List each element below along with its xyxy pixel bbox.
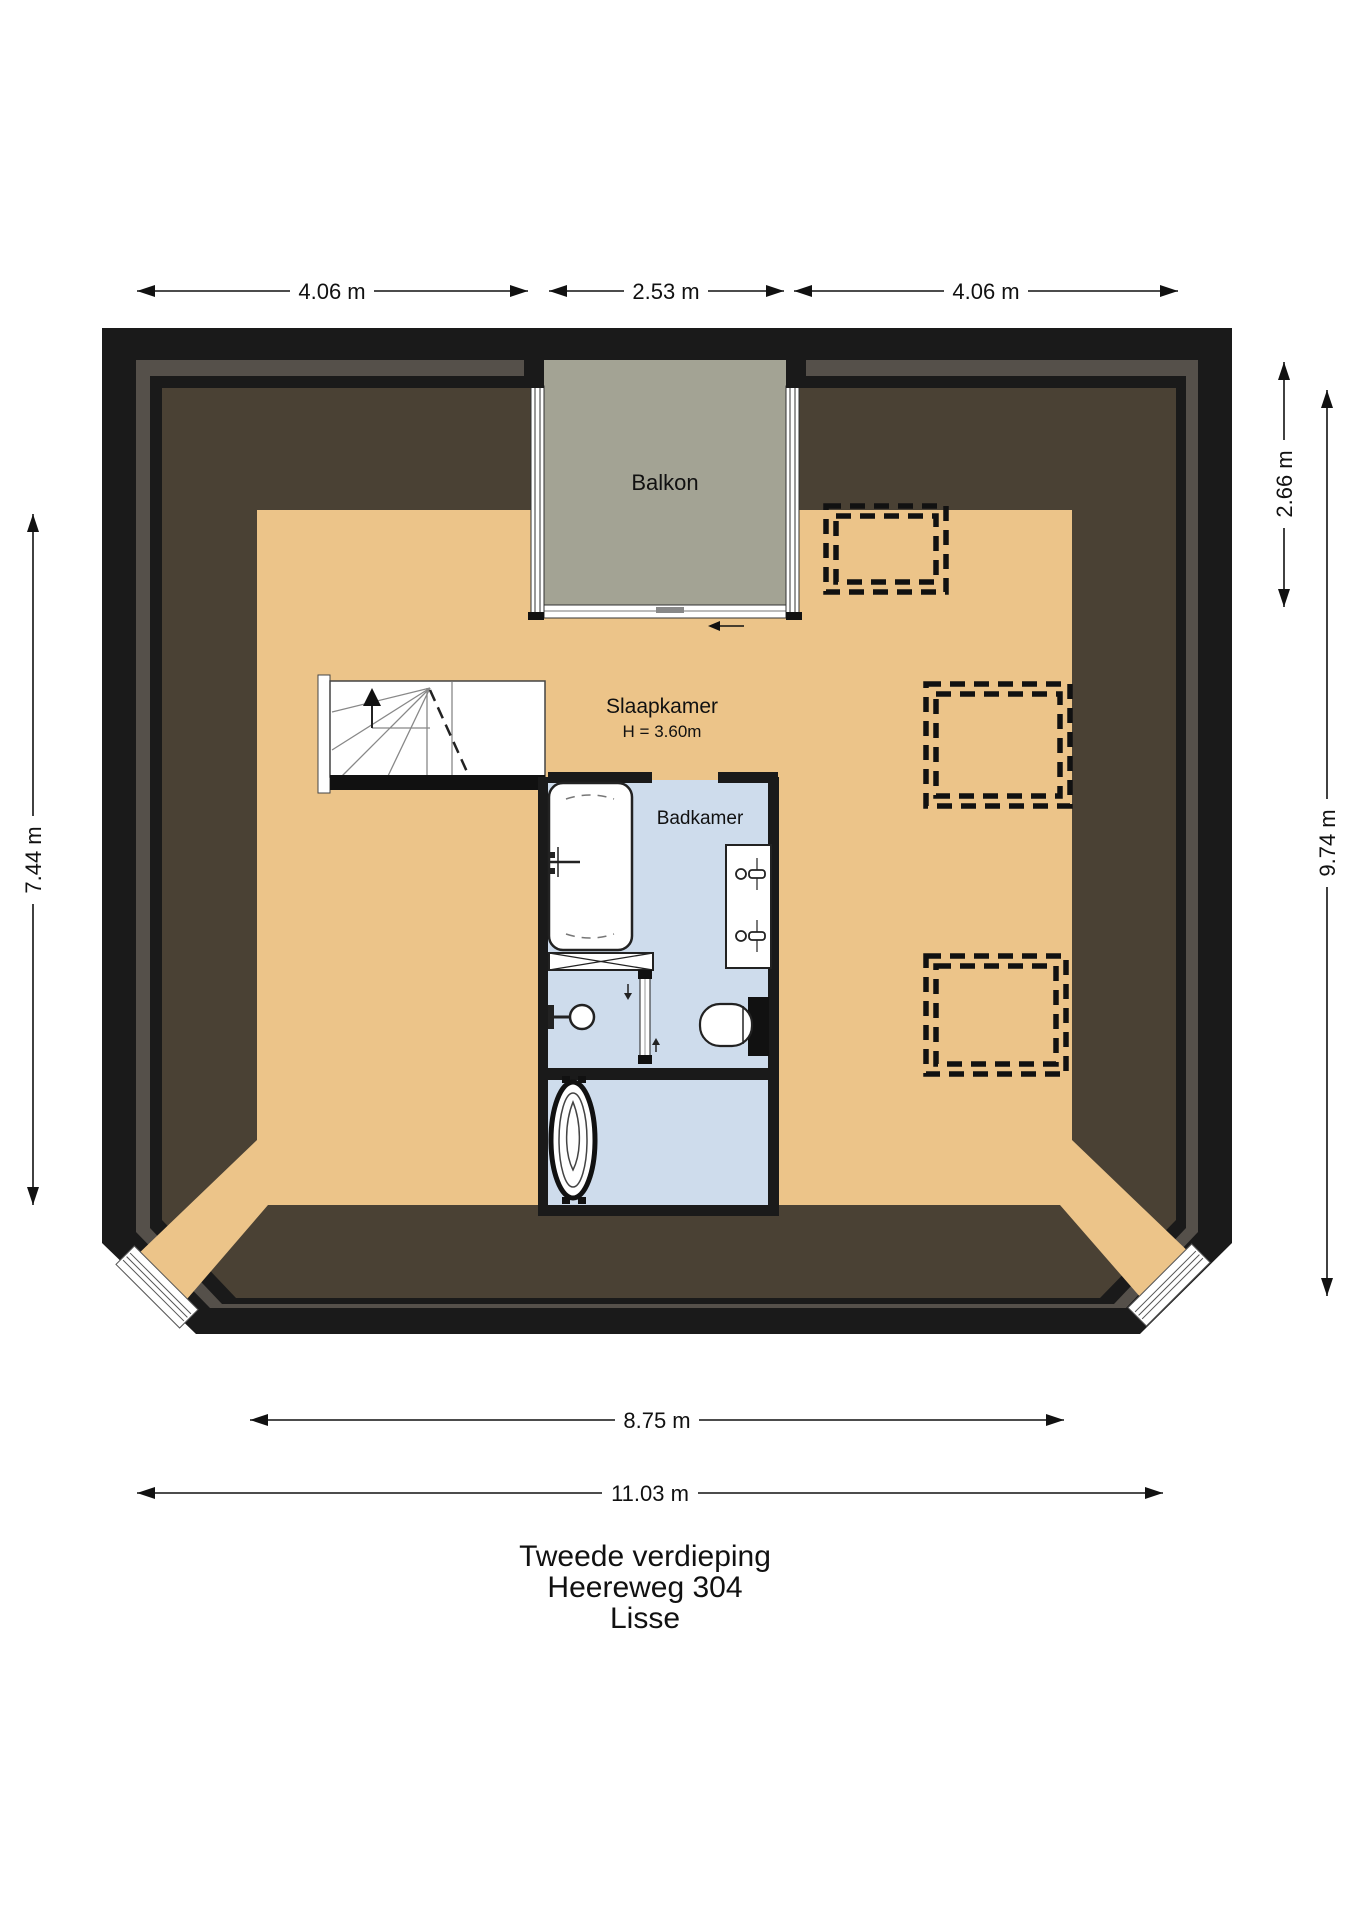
bathroom-wall-top-right bbox=[718, 772, 778, 783]
balcony-label: Balkon bbox=[631, 470, 698, 495]
svg-text:8.75 m: 8.75 m bbox=[623, 1408, 690, 1433]
pedestal-basin-icon bbox=[551, 1076, 595, 1204]
railing-cap-left bbox=[528, 612, 544, 620]
floor-plan-svg: Balkon Slaapkamer H = 3.60m Badkamer 4.0… bbox=[0, 0, 1358, 1920]
washbasin-double-icon bbox=[726, 845, 771, 968]
svg-text:11.03 m: 11.03 m bbox=[611, 1481, 689, 1506]
svg-text:2.66 m: 2.66 m bbox=[1272, 450, 1297, 517]
bathroom-wall-left bbox=[538, 777, 548, 1215]
bathtub-icon bbox=[548, 783, 632, 950]
balcony-railing-right bbox=[786, 386, 799, 618]
title-address: Heereweg 304 bbox=[547, 1571, 742, 1604]
title-city: Lisse bbox=[610, 1602, 680, 1635]
stairs-bottom-wall bbox=[330, 775, 545, 790]
balcony bbox=[524, 360, 806, 631]
bedroom-label: Slaapkamer bbox=[606, 695, 718, 718]
shower-door-icon bbox=[638, 970, 652, 1064]
bedroom-height-label: H = 3.60m bbox=[623, 722, 702, 741]
railing-cap-right bbox=[786, 612, 802, 620]
bathroom bbox=[538, 772, 779, 1216]
bathroom-wall-top-left bbox=[548, 772, 652, 783]
counter-icon bbox=[549, 953, 653, 970]
svg-text:4.06 m: 4.06 m bbox=[298, 279, 365, 304]
balcony-wall-stub-left bbox=[524, 360, 544, 388]
svg-text:2.53 m: 2.53 m bbox=[632, 279, 699, 304]
svg-text:4.06 m: 4.06 m bbox=[952, 279, 1019, 304]
svg-text:9.74 m: 9.74 m bbox=[1315, 809, 1340, 876]
balcony-wall-stub-right bbox=[786, 360, 806, 388]
title-floor: Tweede verdieping bbox=[519, 1540, 771, 1573]
balcony-sliding-door bbox=[544, 605, 786, 618]
bathroom-wall-right bbox=[768, 777, 779, 1215]
bathroom-label: Badkamer bbox=[657, 808, 744, 829]
svg-text:7.44 m: 7.44 m bbox=[21, 826, 46, 893]
bathroom-wall-bottom bbox=[538, 1205, 779, 1216]
floor-plan-page: Balkon Slaapkamer H = 3.60m Badkamer 4.0… bbox=[0, 0, 1358, 1920]
stairs-icon bbox=[318, 675, 545, 793]
balcony-railing-left bbox=[531, 386, 544, 618]
